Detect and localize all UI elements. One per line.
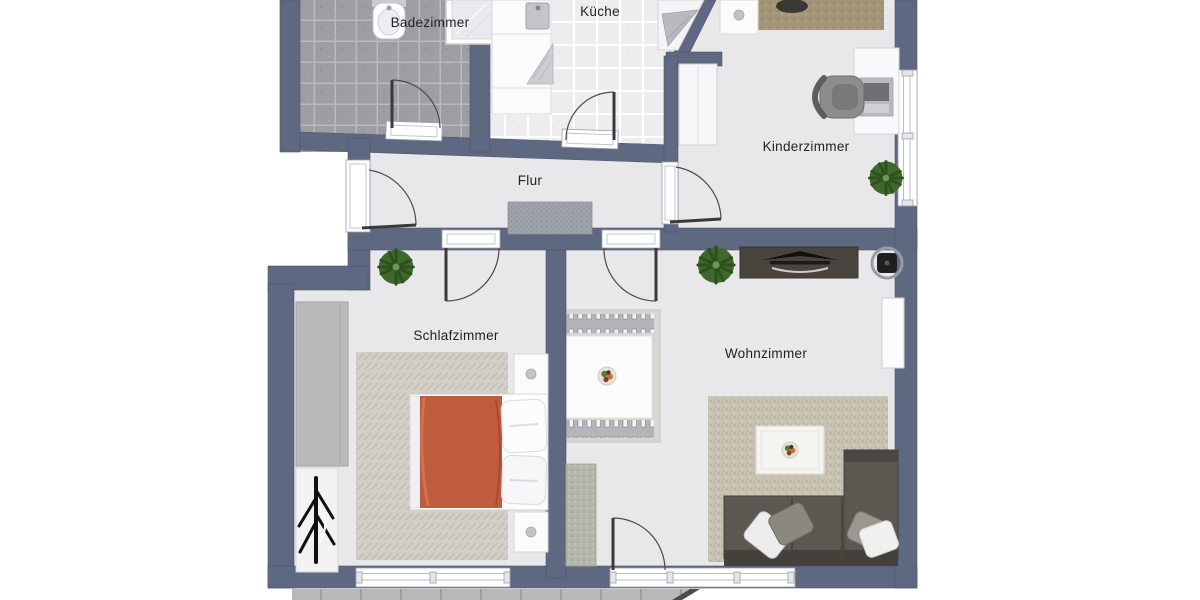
wall-left-outer xyxy=(268,284,294,588)
floorplan-drawing: Badezimmer Küche Kinderzimmer Flur Schla… xyxy=(0,0,1200,600)
wall-mid-divider xyxy=(546,246,566,578)
fruit-bowl xyxy=(598,367,616,385)
living-plant xyxy=(698,247,734,283)
window-schlafzimmer xyxy=(356,568,510,587)
door-kueche xyxy=(562,129,619,149)
terrace xyxy=(292,589,700,600)
kids-rug xyxy=(756,0,884,30)
kids-nightstand xyxy=(720,0,758,34)
dining-set xyxy=(560,310,660,442)
side-shelf xyxy=(566,464,596,566)
wall-cabinet xyxy=(882,298,904,368)
wall-bath-kitchen xyxy=(470,36,490,152)
bedroom-dresser xyxy=(296,468,338,572)
nightstand-bottom xyxy=(514,512,548,552)
bedroom-plant xyxy=(379,250,414,285)
label-badezimmer: Badezimmer xyxy=(391,15,470,30)
desk-chair xyxy=(815,76,864,118)
bed-duvet xyxy=(420,396,502,508)
window-wohnzimmer xyxy=(610,568,795,587)
floorplan-page: Badezimmer Küche Kinderzimmer Flur Schla… xyxy=(0,0,1200,600)
dining-bench-top xyxy=(566,314,654,333)
label-wohnzimmer: Wohnzimmer xyxy=(725,346,807,361)
coffee-table xyxy=(756,426,824,474)
nightstand-top xyxy=(514,354,548,394)
kitchen-counter xyxy=(492,0,553,114)
doormat xyxy=(508,202,592,234)
kids-plant xyxy=(870,162,903,195)
tv-sideboard xyxy=(740,247,858,278)
dining-bench-bottom xyxy=(566,420,654,438)
wall-bath-left xyxy=(280,0,300,152)
bedroom-wardrobe xyxy=(296,302,348,466)
label-kueche: Küche xyxy=(580,4,620,19)
label-kinderzimmer: Kinderzimmer xyxy=(763,139,850,154)
table-flowers xyxy=(782,442,798,458)
door-badezimmer xyxy=(386,121,443,141)
label-flur: Flur xyxy=(518,173,543,188)
bed xyxy=(410,394,548,510)
label-schlafzimmer: Schlafzimmer xyxy=(413,328,499,343)
